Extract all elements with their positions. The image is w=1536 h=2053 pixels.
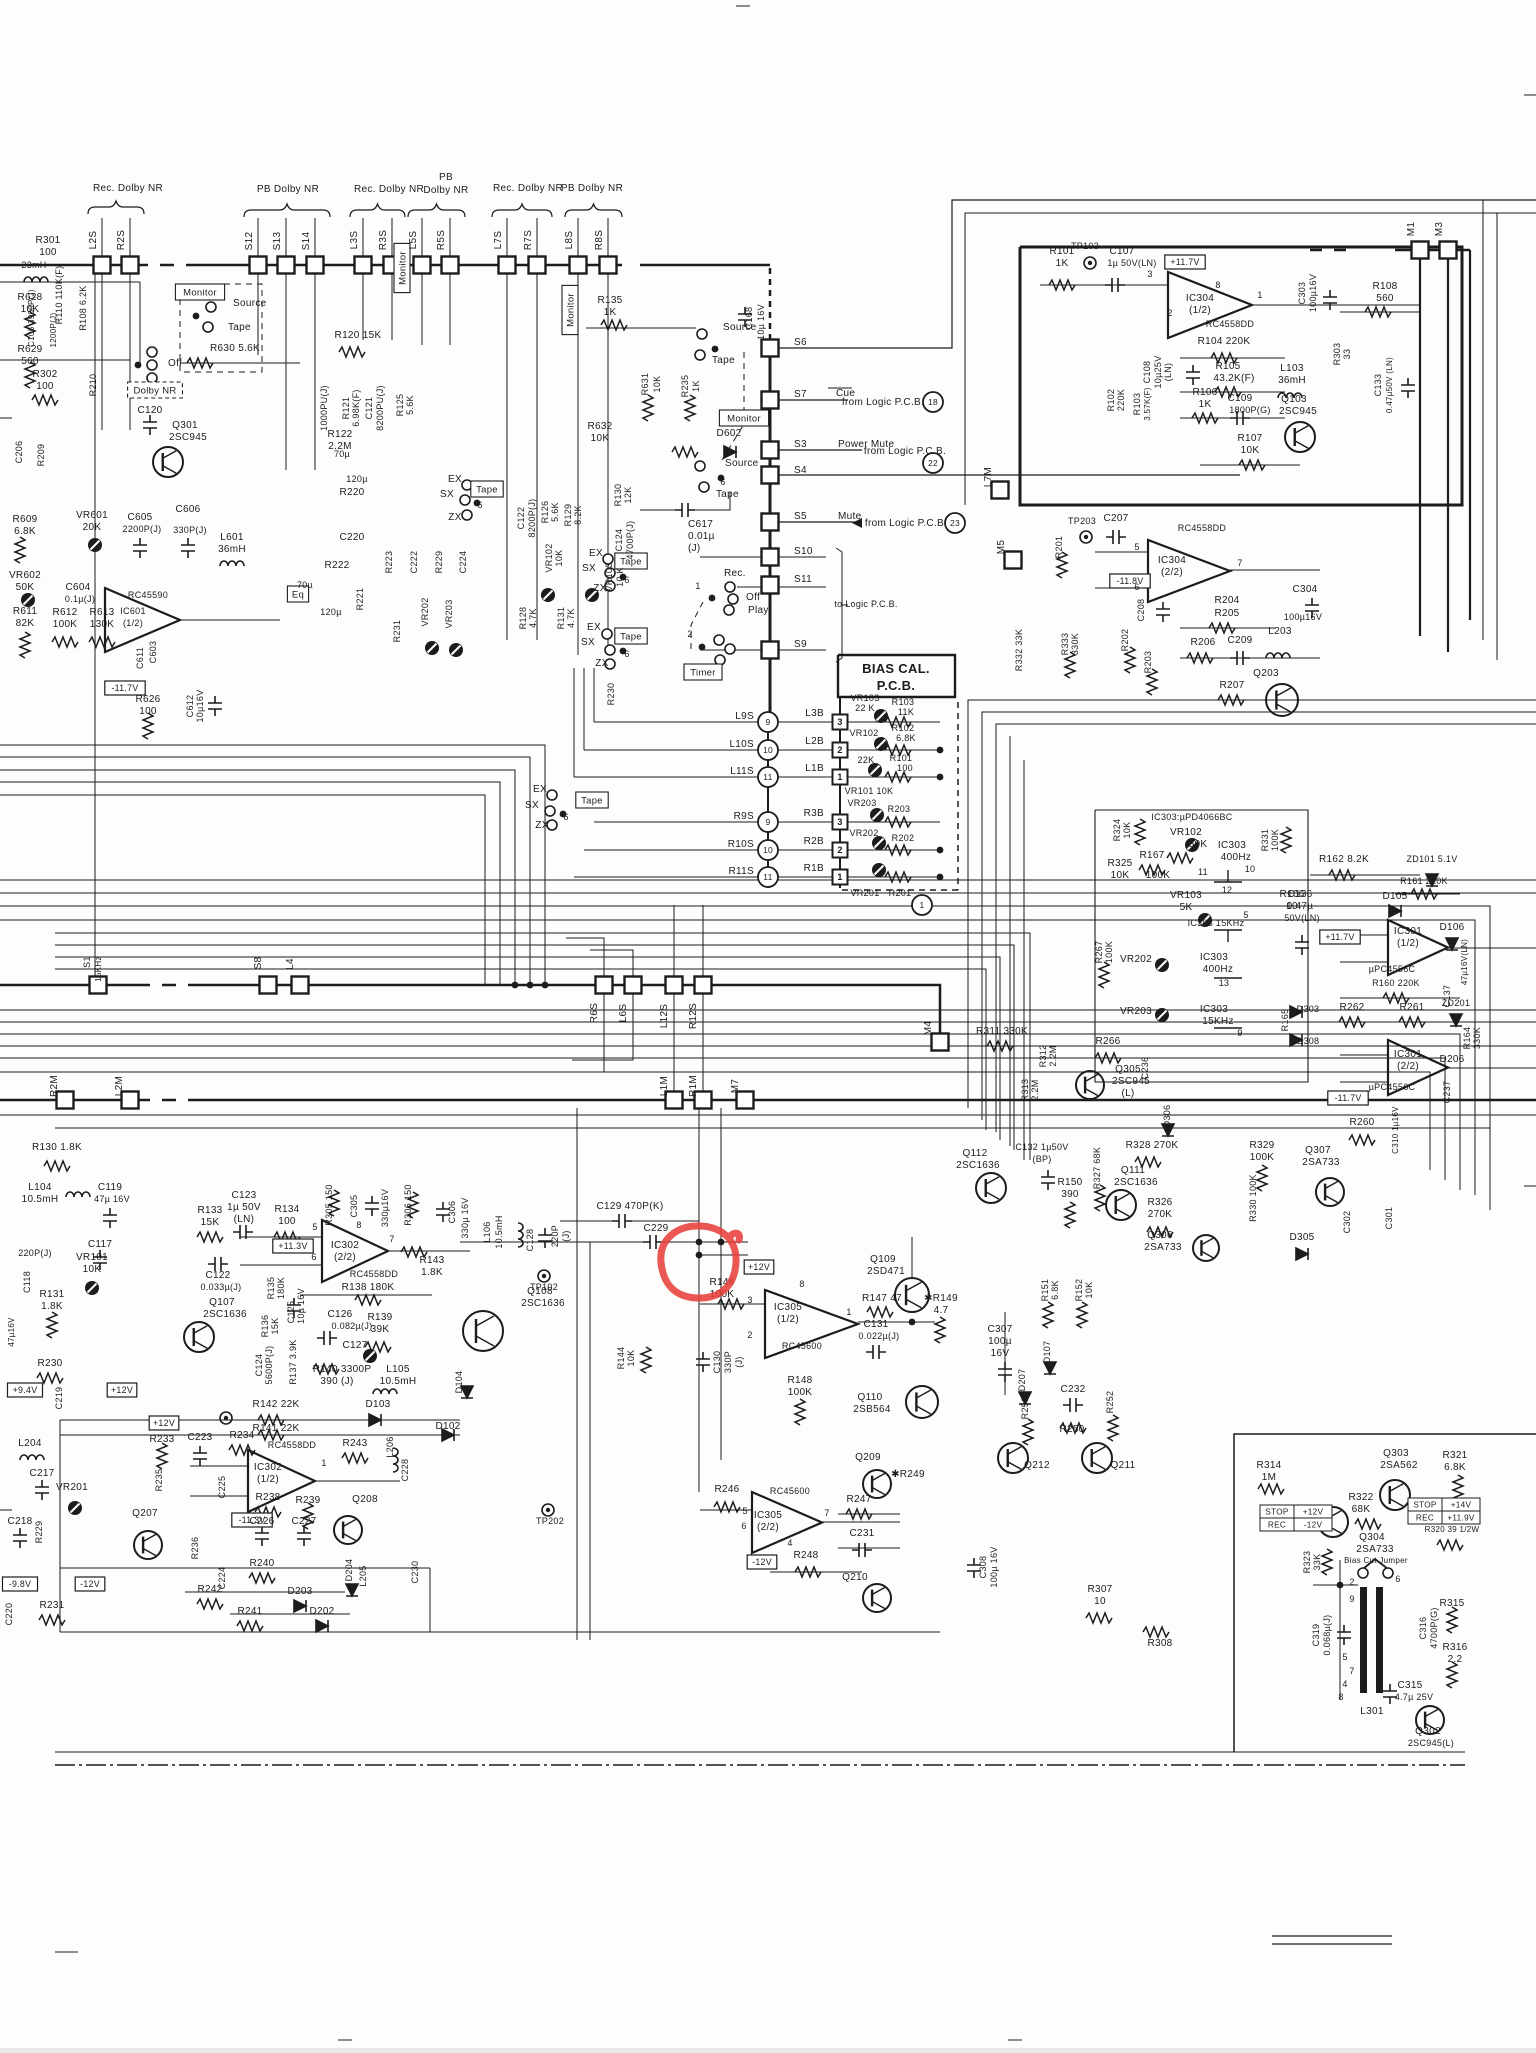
component-label: L7M [983, 467, 994, 487]
component-label: Q208 [352, 1494, 378, 1505]
resistor [795, 1399, 805, 1425]
component-label: C227 [291, 1516, 316, 1527]
component-label: Q307 [1305, 1145, 1331, 1156]
switch-contact [725, 582, 735, 592]
component-label: 0.033µ(J) [201, 1282, 242, 1292]
component-label: R201 [1054, 536, 1064, 559]
component-label: to Logic P.C.B. [834, 599, 897, 609]
component-label: R164 [1462, 1027, 1472, 1050]
transistor [1193, 1235, 1219, 1261]
resistor [1143, 1627, 1169, 1637]
component-label: R10S [728, 839, 754, 850]
resistor [685, 395, 695, 421]
component-label: 13 [1219, 978, 1230, 988]
component-label: 7 [389, 1234, 394, 1244]
transistor-collector [1092, 1447, 1106, 1455]
component-label: SX [525, 800, 539, 811]
junction-dot [542, 982, 549, 989]
component-label: R7S [523, 230, 534, 250]
component-label: VR202 [1120, 954, 1152, 965]
switch-contact [1383, 1568, 1393, 1578]
component-label: 5 [312, 1222, 317, 1232]
component-label: 1M [1262, 1472, 1277, 1483]
component-label: C228 [400, 1459, 410, 1482]
component-label: VR102 [544, 543, 554, 572]
component-label: R133 [197, 1205, 222, 1216]
component-label: R106 [1192, 387, 1217, 398]
component-label: R306 150 [403, 1184, 413, 1225]
component-label: ZX [535, 820, 548, 831]
component-label: C315 [1397, 1680, 1422, 1691]
circled-number-text: 9 [765, 717, 770, 727]
component-label: 5600P(J) [264, 1346, 274, 1385]
component-label: L3S [349, 231, 360, 250]
component-label: IC305 [754, 1510, 782, 1521]
capacitor [208, 1257, 228, 1271]
component-label: R314 [1256, 1460, 1281, 1471]
component-label: R142 22K [253, 1399, 300, 1410]
component-label: R311 330K [976, 1026, 1028, 1037]
component-label: R329 [1249, 1140, 1274, 1151]
connector-square [992, 482, 1009, 499]
component-label: 2SC1636 [1114, 1177, 1158, 1188]
component-label: PB Dolby NR [561, 183, 623, 194]
component-label: L2S [88, 231, 99, 250]
junction-dot [909, 1319, 916, 1326]
component-label: 7 [824, 1508, 829, 1518]
label-box-text: Tape [581, 795, 603, 806]
component-label: (2/2) [334, 1252, 356, 1263]
circled-number-text: 22 [928, 458, 938, 468]
label-box-text: Tape [620, 631, 642, 642]
component-label: 1.8K [41, 1301, 63, 1312]
transistor [863, 1584, 891, 1612]
connector-square [278, 257, 295, 274]
component-label: C612 [185, 695, 195, 718]
component-label: 9 [1237, 1028, 1242, 1038]
resistor [39, 1615, 65, 1625]
resistor [1065, 1202, 1075, 1228]
component-label: C603 [148, 641, 158, 664]
capacitor [297, 1526, 311, 1546]
component-label: L1M [659, 1076, 670, 1096]
component-label: Q111 [1121, 1165, 1145, 1176]
component-label: C310 1µ16V [1391, 1106, 1400, 1154]
junction-dot [1337, 1582, 1344, 1589]
component-label: R203 [888, 804, 911, 814]
component-label: Q107 [209, 1297, 235, 1308]
resistor [1355, 1519, 1381, 1529]
component-label: R162 8.2K [1319, 854, 1369, 865]
component-label: 8 [1215, 280, 1220, 290]
component-label: R248 [793, 1550, 818, 1561]
junction-dot [527, 982, 534, 989]
component-label: 390 (J) [320, 1376, 353, 1387]
component-label: 6 [563, 812, 568, 822]
switch-contact [147, 347, 157, 357]
component-label: 2 [1349, 1577, 1354, 1587]
component-label: R135 [266, 1277, 276, 1300]
transistor-collector [1295, 426, 1309, 434]
component-label: 2 [1167, 308, 1172, 318]
component-label: 15KHz [1202, 1016, 1234, 1027]
component-label: 70µ [297, 580, 313, 590]
capacitor [193, 1446, 207, 1466]
capacitor [35, 1480, 49, 1500]
transistor-collector [872, 1474, 885, 1481]
component-label: IC302 [254, 1462, 282, 1473]
component-label: R301 [35, 235, 60, 246]
capacitor [1106, 530, 1126, 544]
component-label: VR202 [849, 828, 878, 838]
header-brace [565, 204, 622, 217]
component-label: 10.5mH [380, 1376, 417, 1387]
component-label: IC601 [120, 606, 146, 616]
component-label: Q306 [1147, 1230, 1173, 1241]
resistor [1077, 1302, 1087, 1328]
component-label: Q304 [1359, 1532, 1385, 1543]
component-label: L5S [408, 231, 419, 250]
component-label: R2B [804, 836, 824, 847]
component-label: R144 [616, 1347, 626, 1370]
diode [369, 1414, 381, 1426]
component-label: S14 [301, 232, 312, 251]
wire [0, 745, 545, 985]
resistor [1453, 1475, 1463, 1501]
component-label: L104 [28, 1182, 52, 1193]
component-label: S13 [272, 232, 283, 251]
transistor-collector [343, 1520, 356, 1527]
component-label: C308 [978, 1556, 988, 1579]
component-label: C117 [88, 1239, 113, 1250]
resistor [1437, 1540, 1463, 1550]
component-label: R148 [787, 1375, 812, 1386]
component-label: 0.068µ(J) [1322, 1615, 1332, 1656]
junction-dot [937, 874, 944, 881]
component-label: 2SA733 [1356, 1544, 1394, 1555]
component-label: 0.082µ(J) [332, 1321, 373, 1331]
connector-square [292, 977, 309, 994]
component-label: 1K [1056, 258, 1069, 269]
component-label: R328 270K [1126, 1140, 1179, 1151]
component-label: 6.8K [896, 733, 916, 743]
component-label: R135 [597, 295, 622, 306]
component-label: VR203 [1120, 1006, 1152, 1017]
capacitor [208, 696, 222, 716]
component-label: D102 [435, 1421, 460, 1432]
component-label: 330K [1070, 633, 1080, 655]
component-label: L3B [805, 708, 824, 719]
component-label: 2.2M [1030, 1079, 1040, 1100]
component-label: R207 [1219, 680, 1244, 691]
component-label: C617 [688, 519, 713, 530]
component-label: L7S [493, 231, 504, 250]
component-label: RC45590 [128, 590, 168, 600]
signal-table-text: STOP [1265, 1508, 1289, 1517]
component-label: R222 [324, 560, 349, 571]
component-label: 4700P(G) [1429, 1607, 1439, 1648]
component-label: Q112 [963, 1148, 988, 1159]
component-label: R203 [1143, 651, 1153, 674]
component-label: R629 [17, 344, 42, 355]
component-label: 1200P(J) [49, 313, 58, 348]
signal-table-text: +14V [1451, 1501, 1472, 1510]
signal-table-text: +11.9V [1447, 1514, 1475, 1523]
capacitor [317, 1331, 337, 1345]
resistor [1135, 819, 1145, 845]
component-label: R308 [1147, 1638, 1172, 1649]
component-label: L8S [564, 231, 575, 250]
component-label: R202 [1120, 629, 1130, 652]
component-label: R630 5.6K [210, 343, 260, 354]
component-label: 12 [1222, 885, 1233, 895]
signal-table-text: REC [1268, 1521, 1286, 1530]
switch-contact [206, 302, 216, 312]
component-label: C319 [1311, 1624, 1321, 1647]
wire [55, 969, 986, 1130]
component-label: 15K [270, 1318, 280, 1335]
transistor-collector [1116, 1194, 1130, 1202]
resistor [1086, 1613, 1112, 1623]
component-label: VR203 [444, 599, 454, 628]
component-label: L12S [659, 1004, 670, 1029]
switch-contact [462, 510, 472, 520]
transistor [1285, 422, 1315, 452]
inductor [20, 1455, 44, 1460]
component-label: C237 [1442, 1081, 1452, 1104]
resistor [1322, 1549, 1332, 1575]
transistor [184, 1322, 214, 1352]
junction-dot [718, 1239, 725, 1246]
component-label: L206 [385, 1436, 395, 1457]
component-label: 0.01µ [688, 531, 715, 542]
component-label: 20K [83, 522, 102, 533]
inductor [518, 1223, 523, 1247]
component-label: S8 [253, 956, 264, 969]
junction-dot [699, 644, 706, 651]
component-label: R108 [1372, 281, 1397, 292]
component-label: C301 [1384, 1207, 1394, 1230]
transistor-emitter [1085, 1089, 1098, 1096]
component-label: Q110 [858, 1392, 883, 1403]
resistor [37, 1373, 63, 1383]
component-label: 47µ16V(LN) [1460, 939, 1469, 985]
component-label: ZD201 [1442, 998, 1471, 1008]
capacitor [181, 538, 195, 558]
component-label: R202 [892, 833, 915, 843]
component-label: Mute [838, 511, 862, 522]
transformer-bar [1360, 1587, 1367, 1693]
component-label: R333 [1060, 633, 1070, 656]
component-label: Q209 [855, 1452, 881, 1463]
resistor [1043, 1302, 1053, 1328]
transistor [976, 1173, 1006, 1203]
component-label: (2/2) [1397, 1061, 1419, 1072]
component-label: 10 [1094, 1596, 1106, 1607]
connector-square [600, 257, 617, 274]
transistor-collector [1276, 688, 1290, 696]
component-label: D203 [287, 1586, 312, 1597]
voltage-rail-label: -12V [752, 1557, 772, 1567]
component-label: 8200PU(J) [375, 385, 385, 431]
component-label: R223 [384, 551, 394, 574]
component-label: S7 [794, 389, 807, 400]
capacitor [133, 538, 147, 558]
component-label: D306 [1162, 1105, 1172, 1128]
component-label: 2.2M [1048, 1045, 1058, 1066]
component-label: 22 K [855, 703, 875, 713]
component-label: R3S [378, 230, 389, 250]
component-label: 6.8K [14, 526, 36, 537]
resistor [1108, 1415, 1118, 1441]
component-label: R316 [1442, 1642, 1467, 1653]
component-label: R322 [1348, 1492, 1373, 1503]
component-label: 2SD471 [867, 1266, 905, 1277]
component-label: (J) [688, 543, 701, 554]
label-box-text: Dolby NR [133, 385, 176, 396]
component-label: R120 15K [335, 330, 382, 341]
wire [0, 1058, 1445, 1180]
component-label: R262 [1339, 1002, 1364, 1013]
inductor [66, 1192, 90, 1197]
wire [778, 200, 1536, 348]
component-label: 39K [371, 1324, 390, 1335]
component-label: R231 [39, 1600, 64, 1611]
component-label: D207 [1017, 1369, 1027, 1392]
component-label: C122 [205, 1270, 230, 1281]
transistor [153, 447, 183, 477]
component-label: 8 [799, 1279, 804, 1289]
component-label: 8200P(J) [527, 499, 537, 538]
circled-number-text: 18 [928, 397, 938, 407]
component-label: 7 [1237, 558, 1242, 568]
component-label: 120µ [320, 607, 341, 617]
component-label: Q303 [1383, 1448, 1409, 1459]
component-label: M5 [996, 540, 1007, 555]
component-label: D107 [1042, 1341, 1052, 1364]
label-box-group: Monitor [719, 410, 768, 426]
resistor [15, 537, 25, 563]
component-label: R247 [846, 1494, 871, 1505]
component-label: 100µ16V [1308, 274, 1318, 312]
component-label: 220P [550, 1225, 560, 1247]
resistor [197, 1232, 223, 1242]
component-label: 6 [1395, 1574, 1400, 1584]
component-label: R220 [339, 487, 364, 498]
transistor-collector [1201, 1238, 1213, 1245]
component-label: R327 68K [1092, 1147, 1102, 1189]
connector-square [762, 577, 779, 594]
component-label: VR203 [847, 798, 876, 808]
label-box-text: Tape [476, 484, 498, 495]
component-label: R107 [1237, 433, 1262, 444]
component-label: C218 [7, 1516, 32, 1527]
component-label: IC301 [1394, 1049, 1422, 1060]
component-label: R251 [1020, 1397, 1030, 1420]
component-label: 400Hz [1203, 964, 1233, 975]
component-label: C611 [135, 647, 145, 669]
transistor-collector [986, 1177, 1000, 1185]
component-label: 36mH [218, 544, 246, 555]
component-label: SX [440, 489, 454, 500]
component-label: 10µ 16V [296, 1288, 306, 1324]
circled-number-text: 23 [950, 518, 960, 528]
junction-dot [696, 1239, 703, 1246]
component-label: 2SC1636 [203, 1309, 247, 1320]
component-label: C108 [1142, 361, 1152, 384]
component-label: R626 [135, 694, 160, 705]
bias-connector-number: 2 [837, 745, 842, 755]
component-label: R141 22K [253, 1423, 300, 1434]
component-label: Source [723, 322, 757, 333]
component-label: C306 [447, 1201, 457, 1224]
junction-dot [937, 747, 944, 754]
component-label: 50K [16, 582, 35, 593]
component-label: L1B [805, 763, 824, 774]
wire [1234, 1434, 1536, 1752]
component-label: 2 [687, 629, 692, 639]
component-label: IC304 [1186, 293, 1214, 304]
component-label: C109 [1227, 393, 1252, 404]
component-label: Tape [712, 355, 735, 366]
component-label: R209 [36, 444, 46, 467]
component-label: SX [582, 563, 596, 574]
resistor [1099, 962, 1109, 988]
component-label: Q108 [527, 1286, 553, 1297]
component-label: 560 [1376, 293, 1394, 304]
component-label: 0.47µ50V (LN) [1385, 357, 1394, 413]
resistor [1167, 853, 1193, 863]
inductor [24, 277, 48, 282]
component-label: R313 [1020, 1079, 1030, 1102]
component-label: L204 [18, 1438, 42, 1449]
transistor [906, 1386, 938, 1418]
component-label: 330µ 16V [460, 1197, 470, 1238]
label-box-group: Monitor [394, 243, 410, 292]
component-label: 4.7µ 25V [1395, 1692, 1434, 1702]
voltage-rail-label: -11.7V [111, 683, 138, 693]
component-label: VR101 10K [845, 786, 894, 796]
component-label: 12K [623, 487, 633, 504]
component-label: R150 [1057, 1177, 1082, 1188]
connector-square [529, 257, 546, 274]
resistor [52, 637, 78, 647]
label-box-group: Monitor [562, 285, 578, 334]
resistor [197, 1599, 223, 1609]
component-label: C307 [987, 1324, 1012, 1335]
component-label: 4.7K [528, 608, 538, 628]
component-label: D106 [1439, 922, 1464, 933]
capacitor [852, 1543, 872, 1557]
component-label: RC4558DD [1206, 319, 1255, 329]
component-label: L105 [386, 1364, 410, 1375]
component-label: (1/2) [777, 1314, 799, 1325]
component-label: D303 [1297, 1004, 1320, 1014]
component-label: (LN) [1163, 363, 1173, 382]
component-label: 10.5mH [494, 1215, 504, 1248]
component-label: (1/2) [1397, 938, 1419, 949]
component-label: Q212 [1024, 1460, 1050, 1471]
junction-dot [135, 362, 142, 369]
component-label: ✱R249 [891, 1469, 925, 1480]
component-label: 1K [691, 380, 701, 392]
component-label: C124 [614, 529, 624, 552]
wire [0, 1034, 1460, 1190]
component-label: 70µ [334, 449, 350, 459]
resistor [1258, 1484, 1284, 1494]
component-label: R315 [1439, 1598, 1464, 1609]
component-label: C122 [516, 507, 526, 530]
